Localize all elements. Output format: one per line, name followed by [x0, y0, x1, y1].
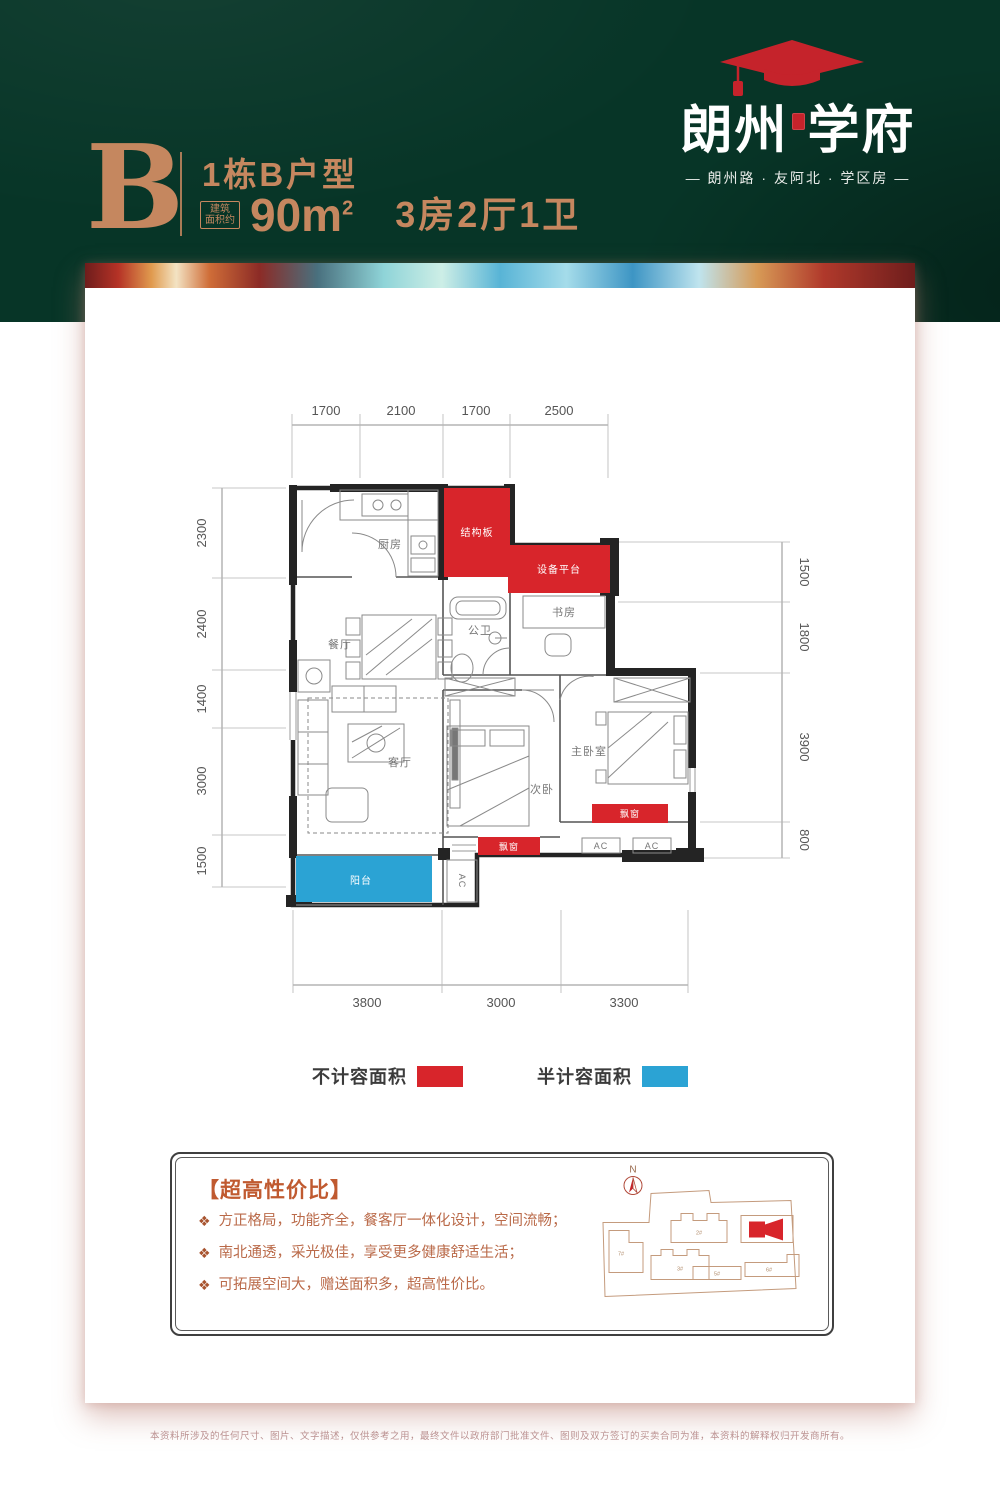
floor-plan: 1700 2100 1700 2500 2300 2400 1400 3000 … [185, 383, 825, 1023]
room-label-ac: AC [457, 874, 467, 889]
diamond-ornament-icon: ❖ [198, 1212, 211, 1230]
room-label-kitchen: 厨房 [378, 538, 402, 551]
feature-item: ❖ 南北通透，采光极佳，享受更多健康舒适生活； [198, 1244, 598, 1263]
dim-label: 1700 [462, 403, 491, 418]
feature-text: 可拓展空间大，赠送面积多，超高性价比。 [219, 1276, 495, 1295]
dim-label: 1400 [194, 685, 209, 714]
dim-label: 1700 [312, 403, 341, 418]
legend: 不计容面积 半计容面积 [0, 1063, 1000, 1089]
room-label-equipment: 设备平台 [537, 563, 581, 576]
features-title: 【超高性价比】 [198, 1174, 352, 1204]
svg-text:7#: 7# [618, 1252, 625, 1258]
feature-item: ❖ 可拓展空间大，赠送面积多，超高性价比。 [198, 1276, 598, 1295]
svg-text:2#: 2# [696, 1231, 703, 1237]
dim-label: 1500 [797, 558, 812, 587]
features-list: ❖ 方正格局，功能齐全，餐客厅一体化设计，空间流畅； ❖ 南北通透，采光极佳，享… [198, 1212, 598, 1308]
features-box: 【超高性价比】 ❖ 方正格局，功能齐全，餐客厅一体化设计，空间流畅； ❖ 南北通… [170, 1152, 834, 1336]
svg-text:N: N [629, 1165, 636, 1176]
room-label-bay-window: 飘窗 [620, 808, 640, 819]
svg-text:5#: 5# [714, 1272, 721, 1278]
room-label-ac: AC [645, 841, 660, 851]
room-label-ac: AC [594, 841, 609, 851]
area-rooms: 3房2厅1卫 [395, 197, 581, 233]
dim-label: 3800 [353, 995, 382, 1010]
area-row: 建筑 面积约 90m2 3房2厅1卫 [200, 192, 581, 238]
dim-label: 2500 [545, 403, 574, 418]
room-label-bedroom2: 次卧 [530, 782, 554, 796]
compass-icon: N [624, 1165, 642, 1195]
headline-divider [180, 152, 182, 236]
unit-letter: B [86, 130, 184, 246]
brand-tagline: — 朗州路 · 友阿北 · 学区房 — [648, 168, 948, 188]
diamond-ornament-icon: ❖ [198, 1244, 211, 1262]
feature-item: ❖ 方正格局，功能齐全，餐客厅一体化设计，空间流畅； [198, 1212, 598, 1231]
legend-swatch-blue [642, 1066, 688, 1087]
feature-text: 方正格局，功能齐全，餐客厅一体化设计，空间流畅； [219, 1212, 567, 1231]
site-plan: N 7# 2# 3# 5# 6# [591, 1160, 826, 1326]
dim-label: 3000 [194, 767, 209, 796]
brand-name: 朗州学府 [648, 88, 948, 163]
brand-seal [792, 113, 805, 130]
legend-swatch-red [417, 1066, 463, 1087]
room-label-dining: 餐厅 [328, 637, 352, 651]
legend-label: 不计容面积 [312, 1063, 407, 1089]
room-label-study: 书房 [552, 606, 576, 619]
dim-label: 2400 [194, 610, 209, 639]
dim-label: 1800 [797, 623, 812, 652]
legend-item: 半计容面积 [537, 1063, 688, 1089]
area-badge: 建筑 面积约 [200, 201, 240, 229]
dim-label: 2300 [194, 519, 209, 548]
room-label-master: 主卧室 [571, 744, 607, 758]
dim-label: 3900 [797, 733, 812, 762]
dim-label: 1500 [194, 847, 209, 876]
dim-label: 3300 [610, 995, 639, 1010]
dim-label: 800 [797, 829, 812, 851]
room-label-bath: 公卫 [468, 625, 492, 637]
room-label-structural: 结构板 [461, 526, 494, 539]
room-label-bay-window: 飘窗 [499, 841, 519, 852]
legend-label: 半计容面积 [537, 1063, 632, 1089]
building-labels: 7# 2# 3# 5# 6# [618, 1231, 773, 1278]
diamond-ornament-icon: ❖ [198, 1276, 211, 1294]
room-label-balcony: 阳台 [350, 874, 372, 887]
abstract-paint-strip [85, 263, 915, 288]
legend-item: 不计容面积 [312, 1063, 463, 1089]
highlighted-building [749, 1219, 783, 1241]
dim-label: 2100 [387, 403, 416, 418]
svg-text:6#: 6# [766, 1268, 773, 1274]
dim-label: 3000 [487, 995, 516, 1010]
feature-text: 南北通透，采光极佳，享受更多健康舒适生活； [219, 1244, 524, 1263]
poster-page: 朗州学府 — 朗州路 · 友阿北 · 学区房 — B 1栋B户型 建筑 面积约 … [0, 0, 1000, 1499]
svg-text:3#: 3# [677, 1267, 684, 1273]
area-value: 90m2 [250, 192, 353, 238]
footer-disclaimer: 本资料所涉及的任何尺寸、图片、文字描述，仅供参考之用，最终文件以政府部门批准文件… [0, 1428, 1000, 1442]
room-label-living: 客厅 [388, 755, 412, 769]
